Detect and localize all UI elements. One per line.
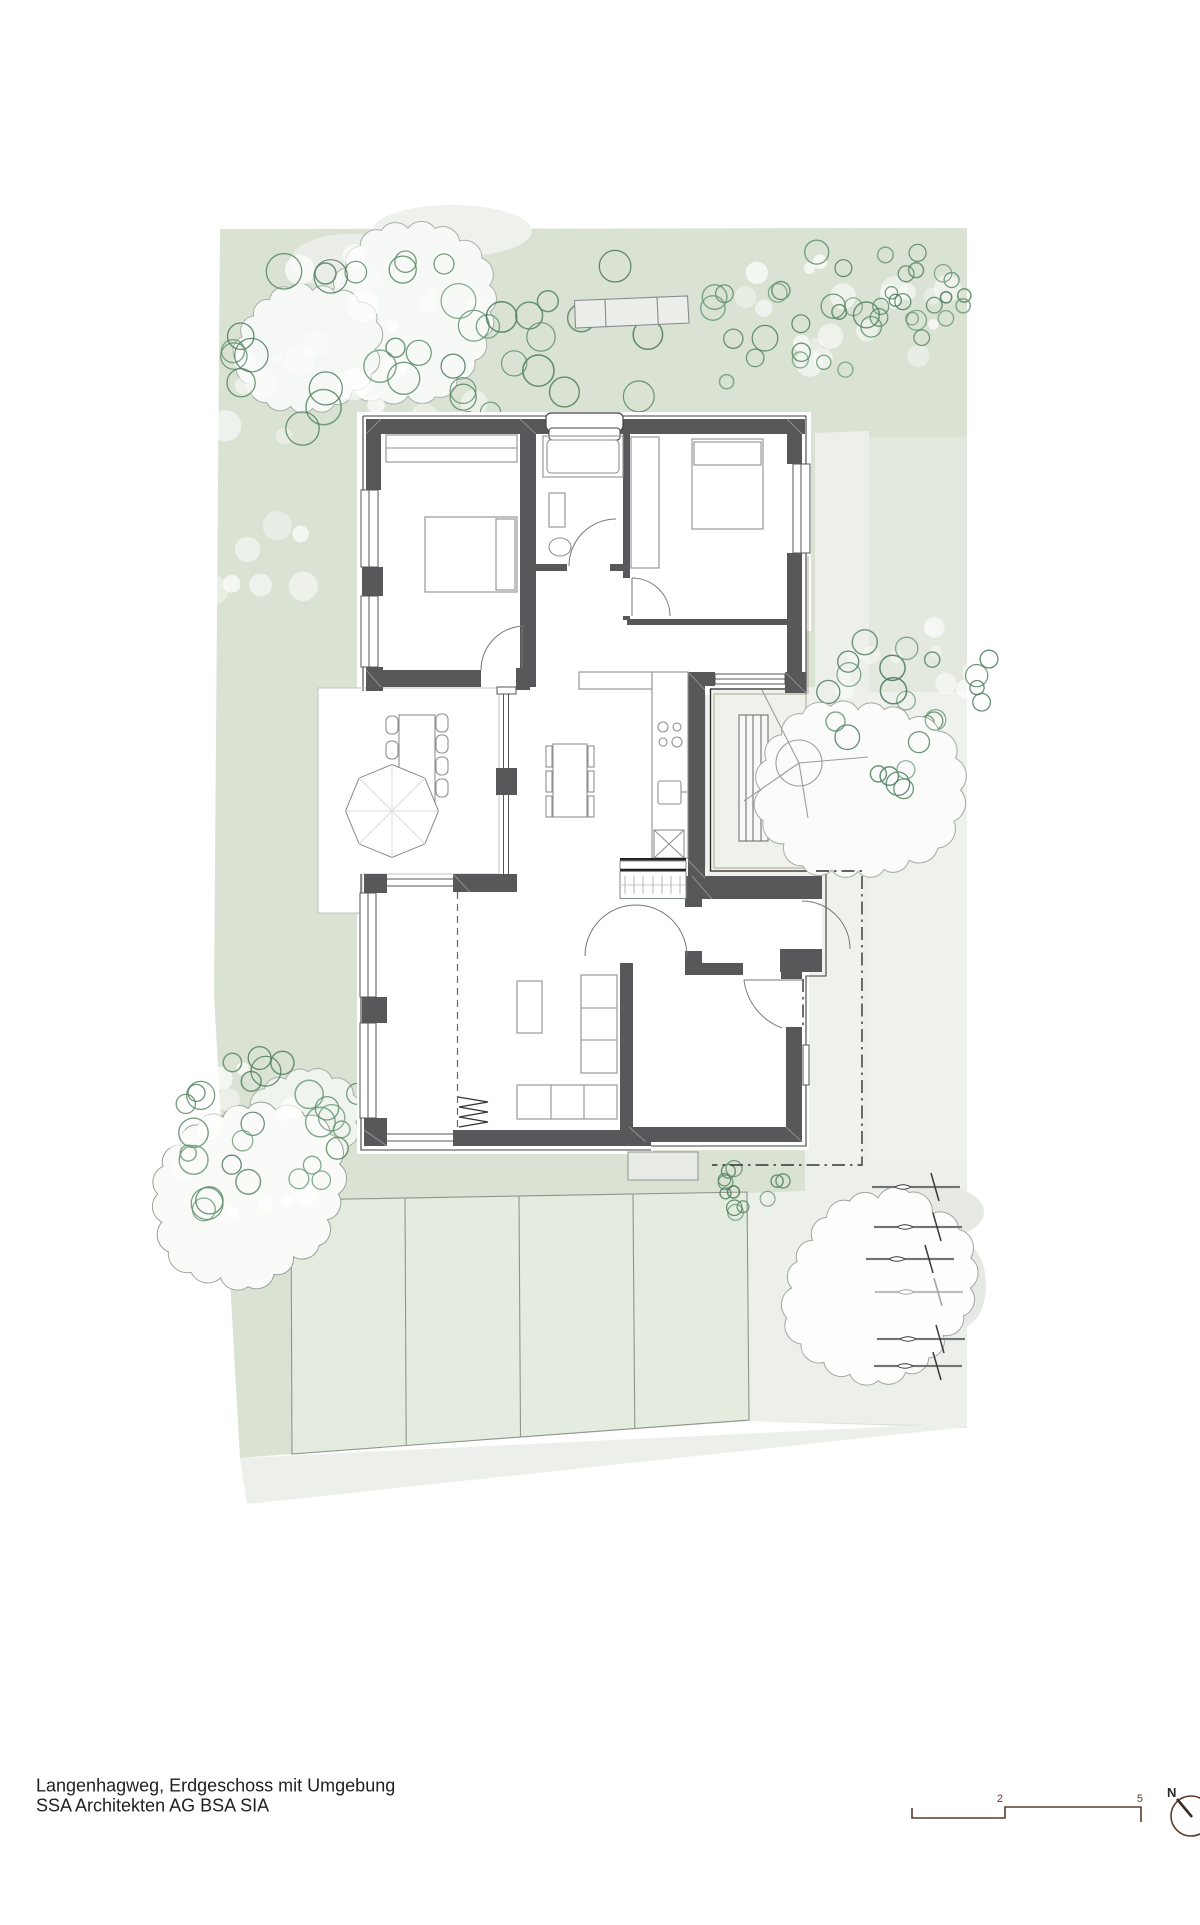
svg-text:SSA Architekten AG BSA SIA: SSA Architekten AG BSA SIA: [36, 1796, 269, 1816]
svg-text:Langenhagweg, Erdgeschoss mit: Langenhagweg, Erdgeschoss mit Umgebung: [36, 1776, 395, 1796]
svg-text:5: 5: [1137, 1793, 1143, 1805]
svg-text:2: 2: [997, 1793, 1003, 1805]
svg-text:N: N: [1167, 1785, 1176, 1800]
